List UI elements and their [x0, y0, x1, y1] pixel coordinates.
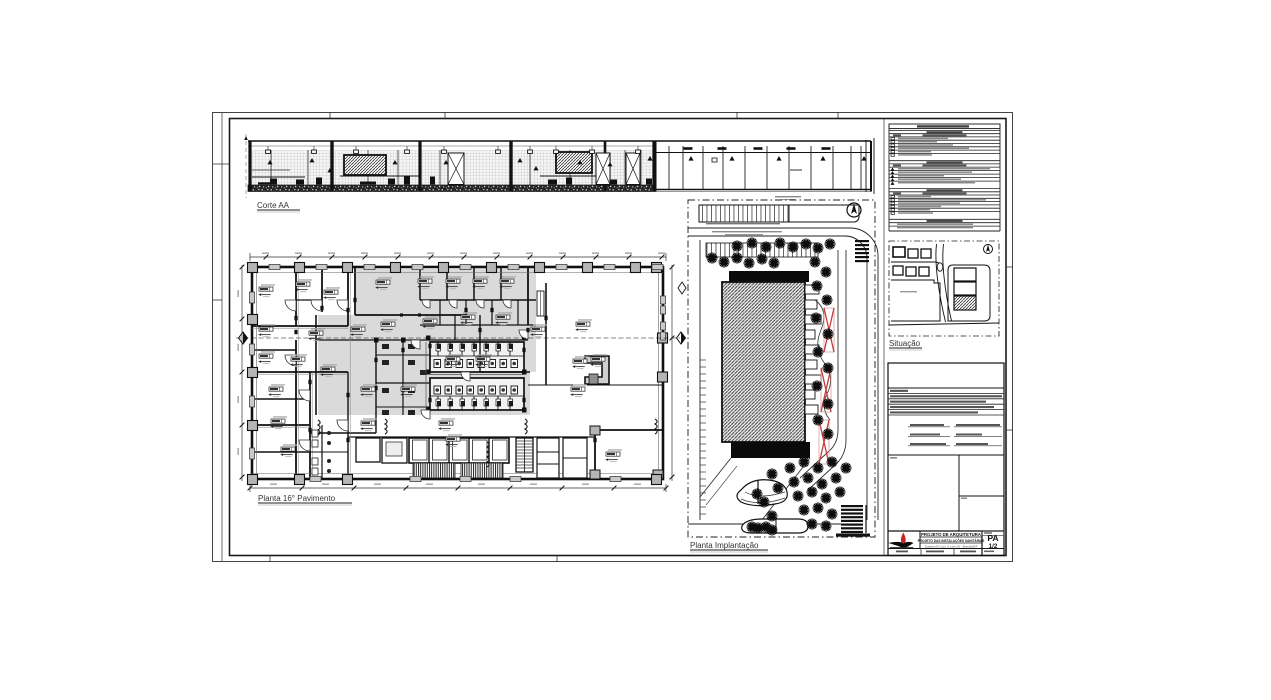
svg-text:Quadra 00 Conj. A Lote 00 - Br: Quadra 00 Conj. A Lote 00 - Brasília/DF: [925, 545, 978, 549]
svg-text:1/2: 1/2: [989, 543, 998, 550]
svg-text:PA: PA: [987, 533, 998, 543]
svg-text:Situação: Situação: [889, 339, 921, 348]
svg-text:PROJETO DAS INSTALAÇÕES SANITÁ: PROJETO DAS INSTALAÇÕES SANITÁRIAS: [918, 538, 985, 543]
svg-text:Corte AA: Corte AA: [257, 201, 290, 210]
svg-text:PROJETO DE ARQUITETURA: PROJETO DE ARQUITETURA: [921, 532, 981, 537]
svg-text:Planta Implantação: Planta Implantação: [690, 541, 759, 550]
svg-text:Planta 16° Pavimento: Planta 16° Pavimento: [258, 494, 336, 503]
